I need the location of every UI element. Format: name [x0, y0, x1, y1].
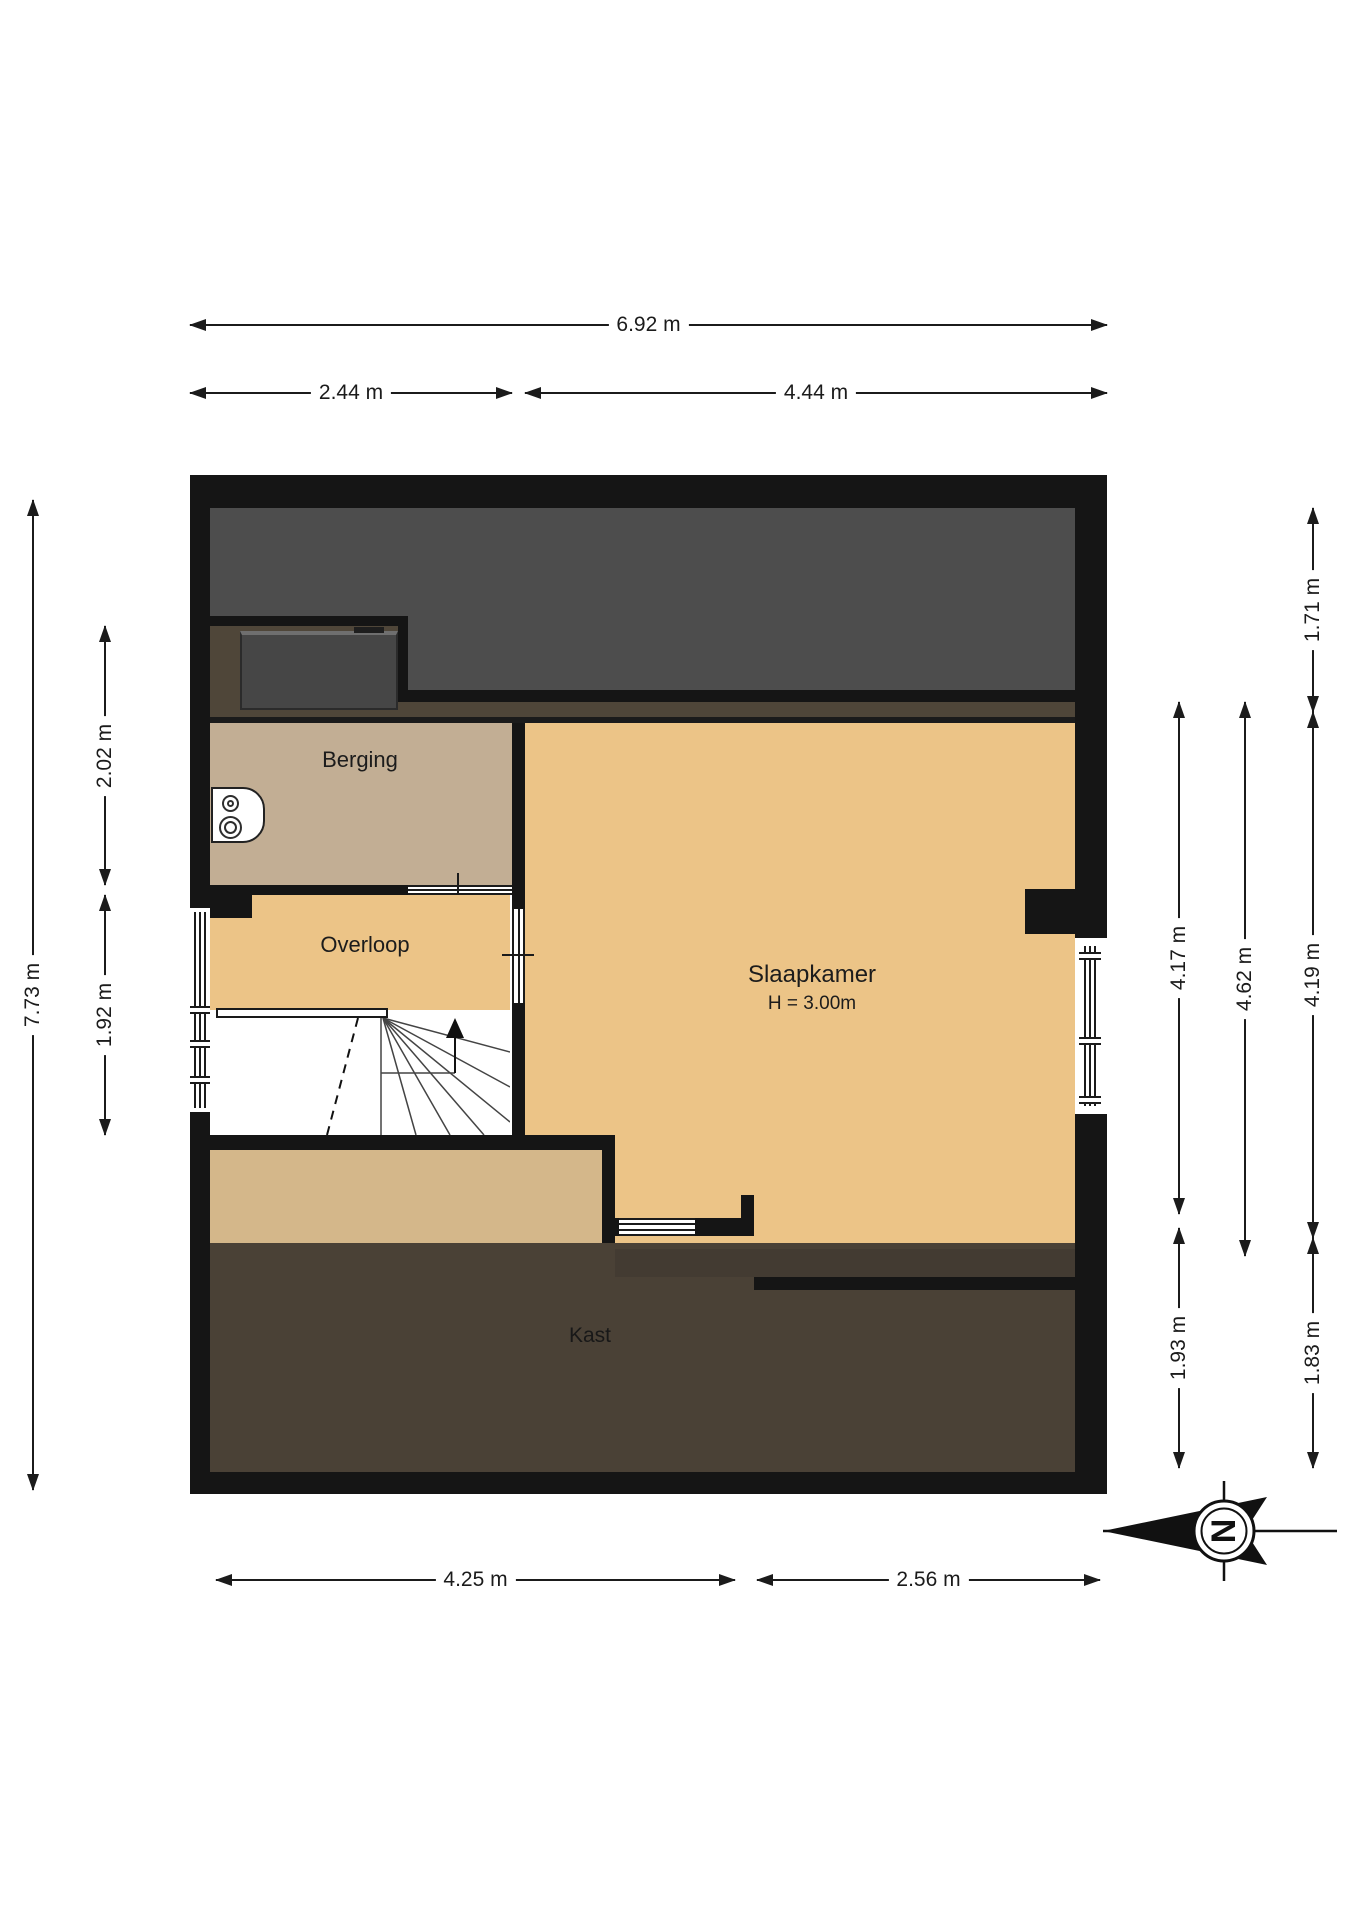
dim-left-upper: 2.02 m: [104, 626, 106, 885]
door-overloop-tick: [502, 954, 534, 956]
wall-dormer-top: [210, 616, 408, 626]
dim-top-total: 6.92 m: [190, 324, 1107, 326]
wall-stub-b: [741, 1195, 754, 1218]
dim-top-total-label: 6.92 m: [608, 313, 688, 337]
dim-top-right-label: 4.44 m: [776, 381, 856, 405]
dim-left-lower-label: 1.92 m: [93, 975, 117, 1055]
room-label-slaapkamer-height: H = 3.00m: [768, 993, 856, 1015]
dim-right-col3-mid-label: 4.19 m: [1301, 935, 1325, 1015]
dormer-box: [240, 631, 398, 710]
dim-top-left: 2.44 m: [190, 392, 512, 394]
wall-stub-a: [602, 1135, 615, 1243]
kast-door: [619, 1218, 695, 1236]
dim-right-col3-upper-label: 1.71 m: [1301, 570, 1325, 650]
room-label-overloop: Overloop: [320, 932, 409, 958]
right-facade-window: [1075, 938, 1107, 1114]
dim-right-col1-upper: 4.17 m: [1178, 702, 1180, 1214]
room-label-berging: Berging: [322, 747, 398, 773]
wall-stub-top: [398, 616, 408, 702]
compass-north-label: N: [1205, 1519, 1243, 1544]
wall-bottom: [190, 1472, 1107, 1494]
kast-roof-shadow-strip: [615, 1249, 1075, 1277]
dim-bottom-right: 2.56 m: [757, 1579, 1100, 1581]
kast-inner-wall-band: [754, 1277, 1075, 1290]
stairs-up-arrow-icon: [446, 1018, 464, 1038]
wall-berging-right-lower: [512, 1003, 525, 1135]
floorplan-page: Berging Overloop Slaapkamer H = 3.00m Ka…: [0, 0, 1358, 1920]
berging-window: [408, 885, 512, 895]
wall-under-roof-right: [408, 690, 1075, 702]
wall-overloop-notch: [210, 895, 252, 918]
dim-right-col3-upper: 1.71 m: [1312, 508, 1314, 712]
room-label-slaapkamer: Slaapkamer: [748, 961, 876, 989]
dim-right-col2: 4.62 m: [1244, 702, 1246, 1256]
stairs-icon: [210, 1005, 510, 1137]
boiler-dial-small-icon: [222, 795, 239, 812]
kast-door-jamb-right: [695, 1218, 754, 1236]
wall-berging-right-upper: [512, 723, 525, 909]
boiler-icon: [211, 787, 265, 843]
dormer-vent-icon: [354, 627, 384, 633]
dim-right-col3-mid: 4.19 m: [1312, 712, 1314, 1238]
wall-top: [190, 475, 1107, 508]
dim-top-right: 4.44 m: [525, 392, 1107, 394]
boiler-dial-large-icon: [219, 816, 242, 839]
dim-right-col2-label: 4.62 m: [1233, 939, 1257, 1019]
dim-top-left-label: 2.44 m: [311, 381, 391, 405]
landing-strip-floor: [210, 1150, 602, 1243]
chimney-block: [1025, 889, 1075, 934]
under-roof-strip-right: [408, 702, 1075, 717]
compass-icon: N: [1095, 1472, 1345, 1590]
wall-right-upper: [1075, 508, 1107, 938]
wall-right-lower: [1075, 1114, 1107, 1472]
dim-bottom-left-label: 4.25 m: [435, 1568, 515, 1592]
dim-left-upper-label: 2.02 m: [93, 715, 117, 795]
door-overloop-slaapkamer: [512, 909, 525, 1003]
dim-right-col3-lower: 1.83 m: [1312, 1238, 1314, 1468]
dim-right-col3-lower-label: 1.83 m: [1301, 1313, 1325, 1393]
dim-left-total: 7.73 m: [32, 500, 34, 1490]
dim-right-col1-upper-label: 4.17 m: [1167, 918, 1191, 998]
dim-right-col1-lower: 1.93 m: [1178, 1228, 1180, 1468]
wall-berging-bottom: [210, 885, 408, 895]
dim-right-col1-lower-label: 1.93 m: [1167, 1308, 1191, 1388]
room-label-kast: Kast: [569, 1324, 611, 1348]
stairs-landing-edge: [216, 1008, 388, 1018]
wall-left-lower: [190, 1112, 210, 1472]
dim-bottom-left: 4.25 m: [216, 1579, 735, 1581]
wall-below-stairs: [190, 1135, 615, 1150]
left-facade-window: [190, 908, 210, 1112]
dim-left-total-label: 7.73 m: [21, 955, 45, 1035]
wall-left-upper: [190, 508, 210, 908]
dim-left-lower: 1.92 m: [104, 895, 106, 1135]
dim-bottom-right-label: 2.56 m: [888, 1568, 968, 1592]
